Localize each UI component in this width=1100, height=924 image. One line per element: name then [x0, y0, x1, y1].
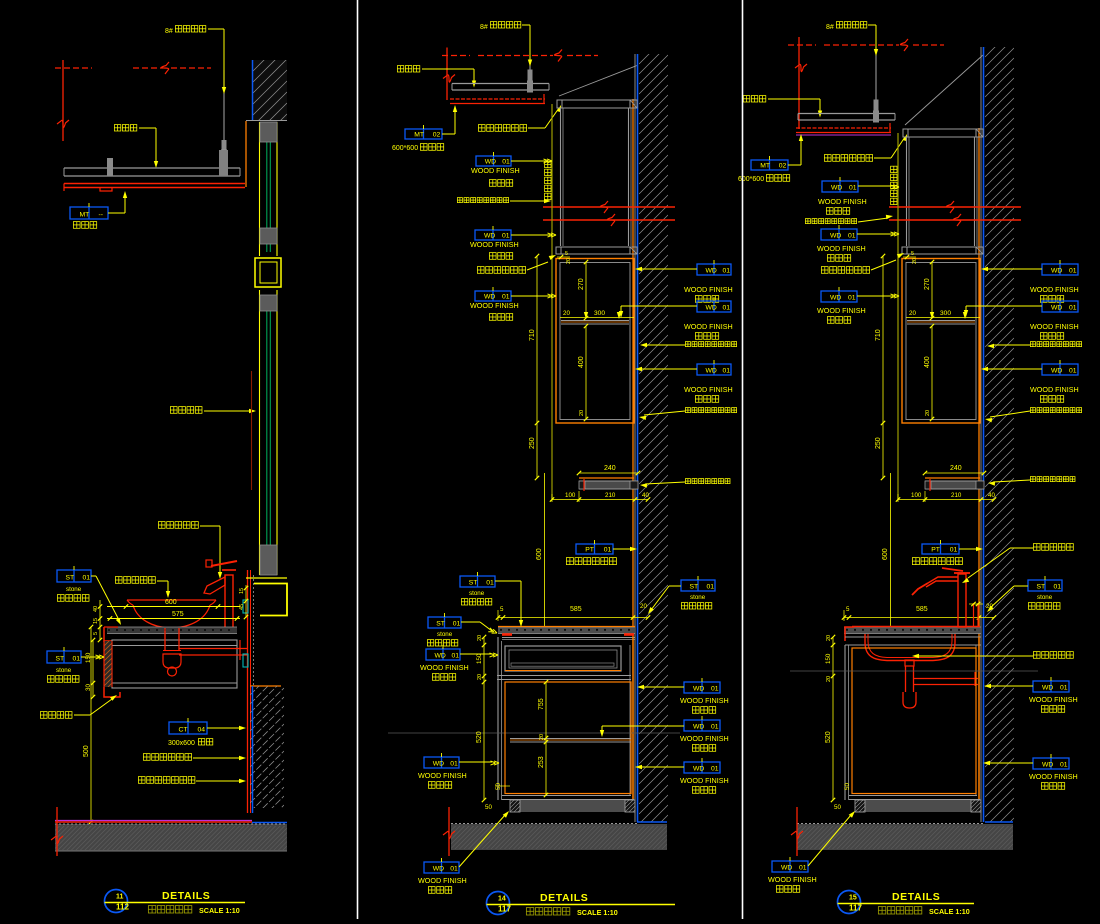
- svg-text:WOOD FINISH: WOOD FINISH: [680, 776, 729, 785]
- svg-text:400: 400: [924, 356, 931, 368]
- svg-text:210: 210: [605, 492, 616, 499]
- svg-text:SCALE 1:10: SCALE 1:10: [199, 906, 240, 915]
- svg-text:stone: stone: [469, 590, 485, 597]
- svg-text:MT: MT: [80, 211, 90, 218]
- svg-text:01: 01: [950, 546, 958, 553]
- svg-text:710: 710: [875, 329, 882, 341]
- svg-text:CT: CT: [179, 726, 188, 733]
- svg-text:ST: ST: [436, 620, 445, 627]
- svg-text:8#: 8#: [480, 24, 488, 31]
- svg-text:WOOD FINISH: WOOD FINISH: [684, 322, 733, 331]
- svg-text:710: 710: [529, 329, 536, 341]
- svg-text:585: 585: [570, 606, 582, 613]
- svg-text:01: 01: [450, 760, 458, 767]
- svg-text:585: 585: [916, 606, 928, 613]
- svg-text:20: 20: [912, 258, 918, 264]
- svg-text:01: 01: [711, 723, 719, 730]
- svg-text:WOOD FINISH: WOOD FINISH: [1029, 772, 1078, 781]
- svg-text:300: 300: [594, 310, 605, 317]
- svg-text:50: 50: [485, 804, 492, 811]
- svg-text:WOOD FINISH: WOOD FINISH: [817, 244, 866, 253]
- svg-text:250: 250: [875, 437, 882, 449]
- svg-text:WOOD FINISH: WOOD FINISH: [817, 306, 866, 315]
- svg-text:20: 20: [477, 674, 483, 680]
- svg-text:WD: WD: [830, 232, 841, 239]
- svg-text:WD: WD: [706, 304, 717, 311]
- svg-text:ST: ST: [469, 579, 478, 586]
- svg-text:8#: 8#: [826, 24, 834, 31]
- svg-text:ST: ST: [56, 655, 65, 662]
- svg-text:01: 01: [1069, 367, 1077, 374]
- svg-text:15: 15: [93, 618, 99, 624]
- svg-text:WD: WD: [781, 864, 792, 871]
- svg-text:01: 01: [450, 865, 458, 872]
- svg-text:5: 5: [93, 632, 99, 635]
- svg-text:WOOD FINISH: WOOD FINISH: [680, 734, 729, 743]
- svg-text:01: 01: [73, 655, 81, 662]
- svg-text:01: 01: [723, 367, 731, 374]
- svg-text:500: 500: [83, 745, 90, 757]
- svg-text:stone: stone: [437, 631, 453, 638]
- svg-text:WOOD FINISH: WOOD FINISH: [471, 166, 520, 175]
- svg-text:WD: WD: [693, 765, 704, 772]
- svg-text:WOOD FINISH: WOOD FINISH: [684, 385, 733, 394]
- svg-text:WOOD FINISH: WOOD FINISH: [470, 301, 519, 310]
- svg-text:WD: WD: [693, 723, 704, 730]
- svg-text:8#: 8#: [165, 28, 173, 35]
- svg-text:01: 01: [849, 184, 857, 191]
- svg-text:270: 270: [924, 278, 931, 290]
- svg-text:5: 5: [500, 606, 504, 613]
- svg-text:01: 01: [1060, 761, 1068, 768]
- svg-text:WOOD FINISH: WOOD FINISH: [1030, 285, 1079, 294]
- svg-text:210: 210: [951, 492, 962, 499]
- svg-text:WOOD FINISH: WOOD FINISH: [768, 875, 817, 884]
- svg-text:WD: WD: [1042, 761, 1053, 768]
- svg-text:stone: stone: [56, 667, 72, 674]
- svg-text:250: 250: [529, 437, 536, 449]
- svg-text:50: 50: [834, 804, 841, 811]
- svg-text:WD: WD: [433, 865, 444, 872]
- svg-text:01: 01: [711, 765, 719, 772]
- svg-text:01: 01: [1069, 267, 1077, 274]
- svg-text:100: 100: [911, 492, 922, 499]
- svg-text:150: 150: [476, 653, 483, 664]
- svg-text:01: 01: [1054, 583, 1062, 590]
- svg-text:20: 20: [563, 310, 570, 317]
- svg-text:04: 04: [198, 726, 206, 733]
- svg-text:150: 150: [825, 653, 832, 664]
- svg-text:20: 20: [826, 676, 832, 682]
- svg-text:270: 270: [578, 278, 585, 290]
- svg-text:WOOD FINISH: WOOD FINISH: [418, 771, 467, 780]
- svg-text:DETAILS: DETAILS: [540, 892, 588, 904]
- svg-text:520: 520: [476, 731, 483, 743]
- svg-text:WD: WD: [485, 158, 496, 165]
- svg-text:MT: MT: [760, 162, 770, 169]
- svg-text:stone: stone: [66, 586, 82, 593]
- svg-text:20: 20: [566, 258, 572, 264]
- svg-text:01: 01: [799, 864, 807, 871]
- svg-text:WD: WD: [830, 294, 841, 301]
- svg-text:WD: WD: [831, 184, 842, 191]
- svg-text:5: 5: [846, 606, 850, 613]
- svg-text:01: 01: [848, 294, 856, 301]
- svg-text:20: 20: [477, 635, 483, 641]
- svg-text:01: 01: [604, 546, 612, 553]
- svg-text:ST: ST: [66, 574, 75, 581]
- svg-text:40: 40: [988, 492, 995, 499]
- svg-text:600*600: 600*600: [392, 145, 418, 152]
- svg-text:WD: WD: [1042, 684, 1053, 691]
- svg-text:WD: WD: [435, 652, 446, 659]
- svg-text:WD: WD: [484, 232, 495, 239]
- svg-text:--: --: [99, 211, 104, 218]
- svg-text:20: 20: [640, 603, 647, 610]
- svg-text:stone: stone: [690, 594, 706, 601]
- svg-text:WD: WD: [1051, 367, 1062, 374]
- svg-text:WOOD FINISH: WOOD FINISH: [1030, 322, 1079, 331]
- svg-text:WD: WD: [433, 760, 444, 767]
- svg-text:20: 20: [826, 635, 832, 641]
- svg-text:01: 01: [83, 574, 91, 581]
- svg-text:WD: WD: [706, 367, 717, 374]
- svg-text:01: 01: [502, 293, 510, 300]
- svg-text:14: 14: [498, 896, 506, 903]
- svg-text:40: 40: [93, 606, 99, 612]
- svg-text:ST: ST: [1037, 583, 1046, 590]
- svg-text:01: 01: [486, 579, 494, 586]
- svg-text:240: 240: [950, 465, 962, 472]
- svg-text:575: 575: [172, 611, 184, 618]
- svg-text:01: 01: [1069, 304, 1077, 311]
- svg-text:MT: MT: [414, 131, 424, 138]
- svg-text:SCALE 1:10: SCALE 1:10: [577, 908, 618, 917]
- svg-text:300x600: 300x600: [168, 740, 195, 747]
- svg-text:WOOD FINISH: WOOD FINISH: [1029, 695, 1078, 704]
- svg-text:WD: WD: [1051, 304, 1062, 311]
- svg-text:600: 600: [882, 548, 889, 560]
- svg-text:15: 15: [239, 588, 245, 594]
- svg-text:300: 300: [940, 310, 951, 317]
- svg-text:stone: stone: [1037, 594, 1053, 601]
- svg-text:WOOD FINISH: WOOD FINISH: [470, 240, 519, 249]
- svg-text:01: 01: [502, 232, 510, 239]
- svg-text:02: 02: [779, 162, 787, 169]
- svg-text:400: 400: [578, 356, 585, 368]
- svg-text:WD: WD: [706, 267, 717, 274]
- svg-text:DETAILS: DETAILS: [892, 891, 940, 903]
- svg-text:01: 01: [1060, 684, 1068, 691]
- svg-text:01: 01: [848, 232, 856, 239]
- svg-text:117: 117: [498, 905, 511, 914]
- svg-text:20: 20: [579, 410, 585, 416]
- svg-text:40: 40: [642, 492, 649, 499]
- svg-text:600: 600: [165, 599, 177, 606]
- svg-text:01: 01: [723, 267, 731, 274]
- svg-text:WOOD FINISH: WOOD FINISH: [818, 197, 867, 206]
- svg-text:WOOD FINISH: WOOD FINISH: [418, 876, 467, 885]
- svg-text:WOOD FINISH: WOOD FINISH: [680, 696, 729, 705]
- svg-text:600: 600: [536, 548, 543, 560]
- svg-text:WOOD FINISH: WOOD FINISH: [420, 663, 469, 672]
- svg-text:755: 755: [538, 698, 545, 710]
- svg-text:01: 01: [723, 304, 731, 311]
- svg-text:20: 20: [909, 310, 916, 317]
- svg-text:15: 15: [849, 895, 857, 902]
- svg-text:50: 50: [844, 783, 851, 790]
- svg-text:100: 100: [565, 492, 576, 499]
- svg-text:PT: PT: [931, 546, 940, 553]
- svg-text:WD: WD: [1051, 267, 1062, 274]
- svg-text:WOOD FINISH: WOOD FINISH: [684, 285, 733, 294]
- svg-text:117: 117: [849, 904, 862, 913]
- svg-text:11: 11: [116, 894, 124, 901]
- svg-text:01: 01: [707, 583, 715, 590]
- svg-text:20: 20: [539, 734, 545, 740]
- svg-text:DETAILS: DETAILS: [162, 890, 210, 902]
- svg-text:SCALE 1:10: SCALE 1:10: [929, 907, 970, 916]
- svg-text:WD: WD: [484, 293, 495, 300]
- svg-text:02: 02: [433, 131, 441, 138]
- svg-text:WD: WD: [693, 685, 704, 692]
- svg-text:520: 520: [825, 731, 832, 743]
- svg-text:01: 01: [452, 652, 460, 659]
- svg-text:253: 253: [538, 756, 545, 768]
- svg-text:45: 45: [239, 604, 245, 610]
- svg-text:01: 01: [453, 620, 461, 627]
- svg-text:01: 01: [711, 685, 719, 692]
- svg-text:01: 01: [502, 158, 510, 165]
- svg-text:5: 5: [565, 251, 568, 257]
- svg-text:240: 240: [604, 465, 616, 472]
- svg-text:20: 20: [925, 410, 931, 416]
- svg-text:5: 5: [911, 251, 914, 257]
- svg-text:PT: PT: [585, 546, 594, 553]
- svg-text:WOOD FINISH: WOOD FINISH: [1030, 385, 1079, 394]
- svg-text:112: 112: [116, 903, 129, 912]
- svg-text:ST: ST: [690, 583, 699, 590]
